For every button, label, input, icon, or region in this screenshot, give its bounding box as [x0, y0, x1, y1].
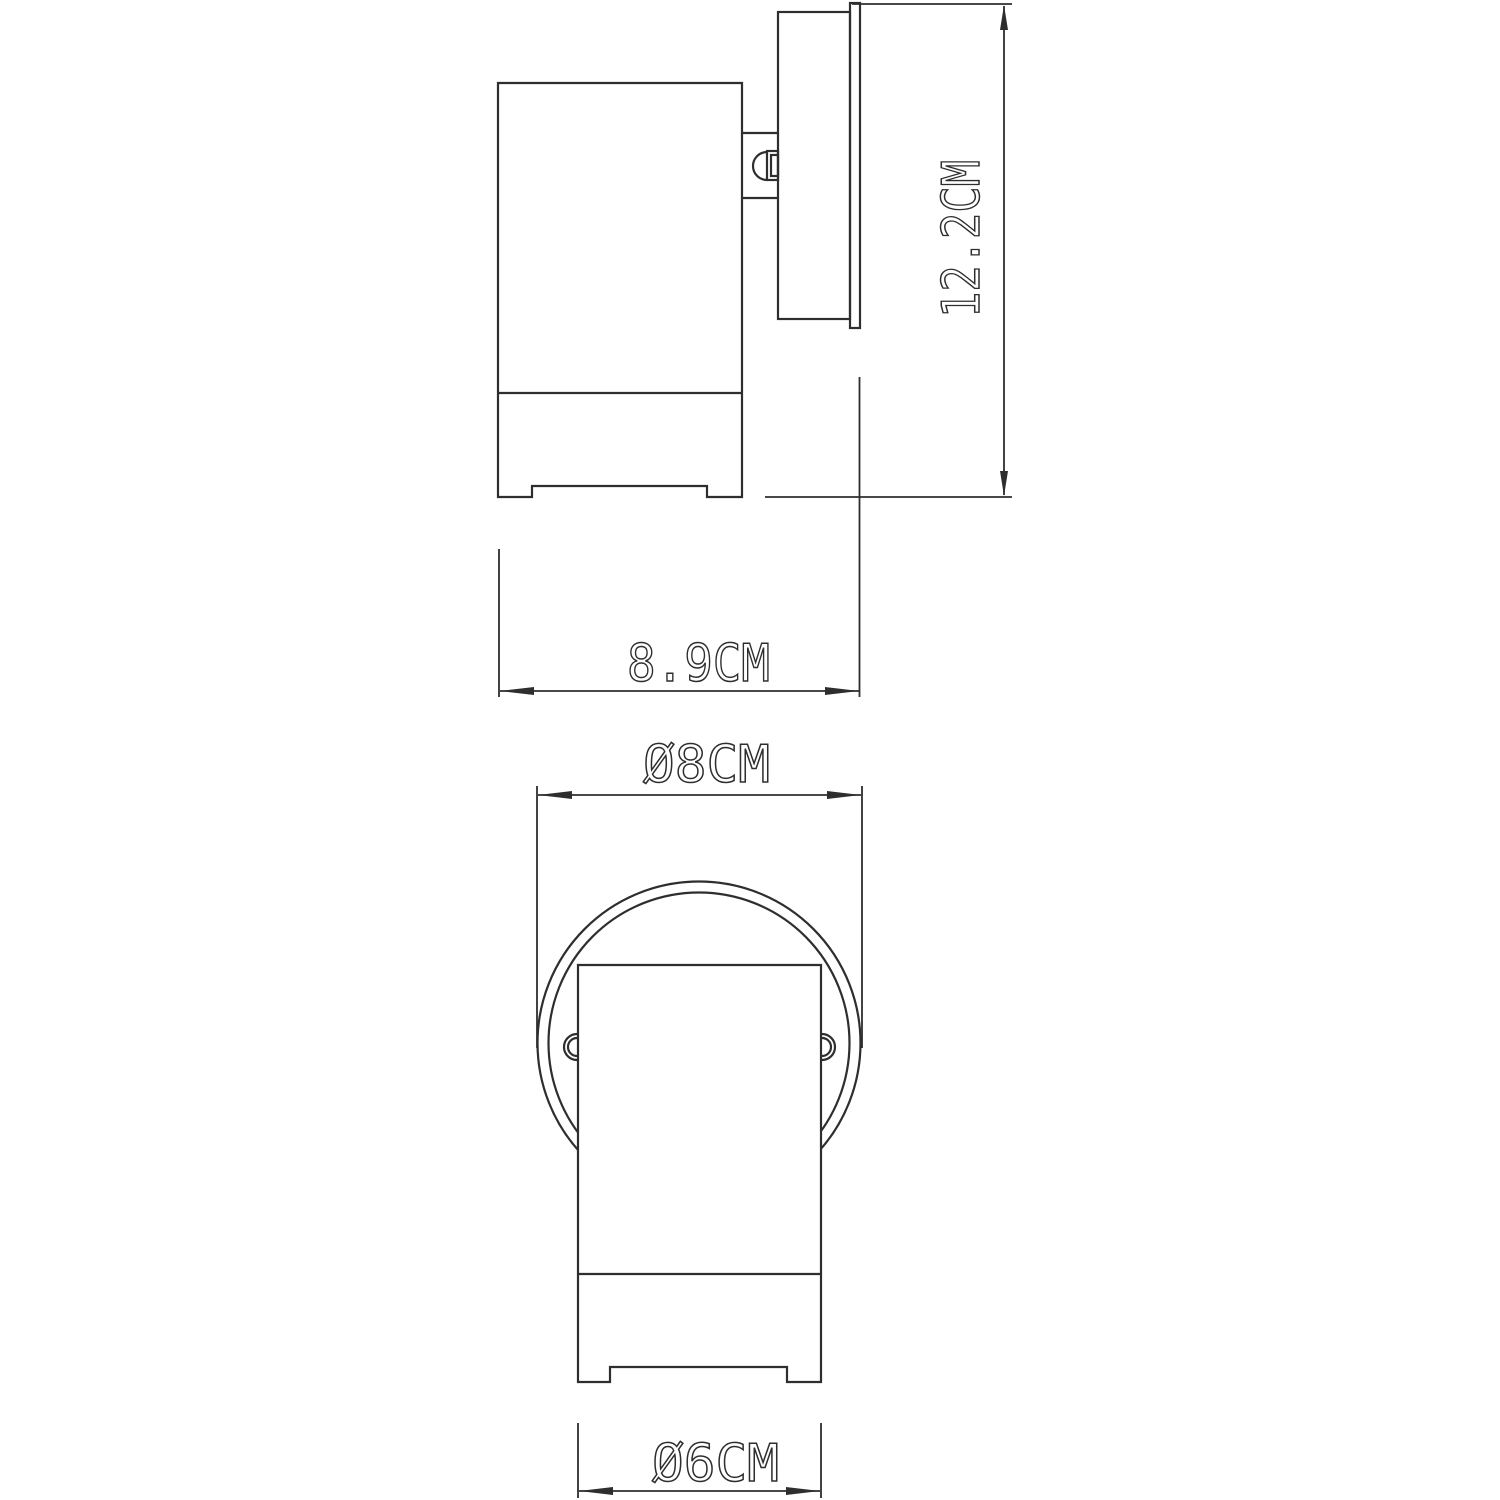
lamp-body-outline: [498, 83, 742, 497]
left-screw-tab-inner: [568, 1038, 577, 1056]
body-arrow-left: [579, 1487, 613, 1495]
drawing-svg: 12.2CM 8.9CM Ø8CM Ø6CM: [0, 0, 1500, 1500]
backplate-arrow-right: [827, 791, 861, 799]
backplate-arrow-left: [538, 791, 572, 799]
depth-arrow-left: [500, 687, 534, 695]
height-arrow-up: [1000, 5, 1008, 30]
wall-plate: [778, 12, 850, 319]
dimension-body-diameter: Ø6CM: [578, 1423, 821, 1498]
dimension-overall-height: 12.2CM: [765, 4, 1012, 497]
front-body-outline: [578, 965, 821, 1382]
dimension-label-body-diameter: Ø6CM: [652, 1434, 779, 1494]
depth-arrow-right: [825, 687, 859, 695]
dimension-label-height: 12.2CM: [932, 160, 992, 318]
body-arrow-right: [786, 1487, 820, 1495]
dimension-label-backplate-diameter: Ø8CM: [643, 735, 770, 795]
dimension-overall-depth: 8.9CM: [499, 377, 860, 697]
wall-plate-back-lip: [850, 3, 860, 328]
technical-drawing-canvas: 12.2CM 8.9CM Ø8CM Ø6CM: [0, 0, 1500, 1500]
dimension-label-depth: 8.9CM: [627, 634, 770, 694]
side-view: [498, 3, 860, 497]
pivot-screw-arc: [753, 152, 767, 180]
right-screw-tab-inner: [822, 1038, 831, 1056]
height-arrow-down: [1000, 471, 1008, 496]
front-view: [538, 882, 861, 1383]
